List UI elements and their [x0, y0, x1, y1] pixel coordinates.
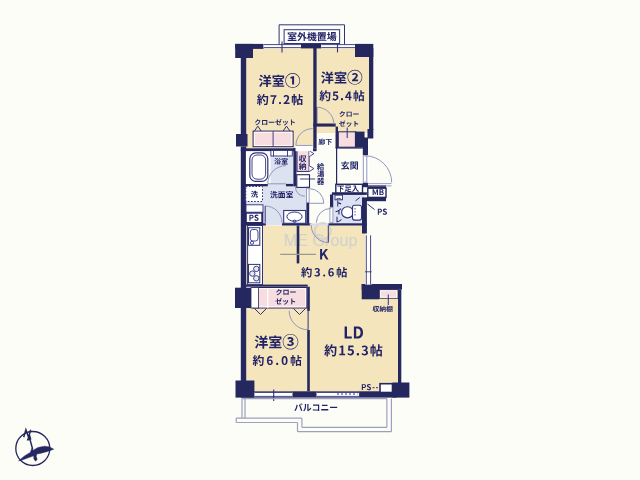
svg-text:ME Group: ME Group [284, 231, 358, 249]
